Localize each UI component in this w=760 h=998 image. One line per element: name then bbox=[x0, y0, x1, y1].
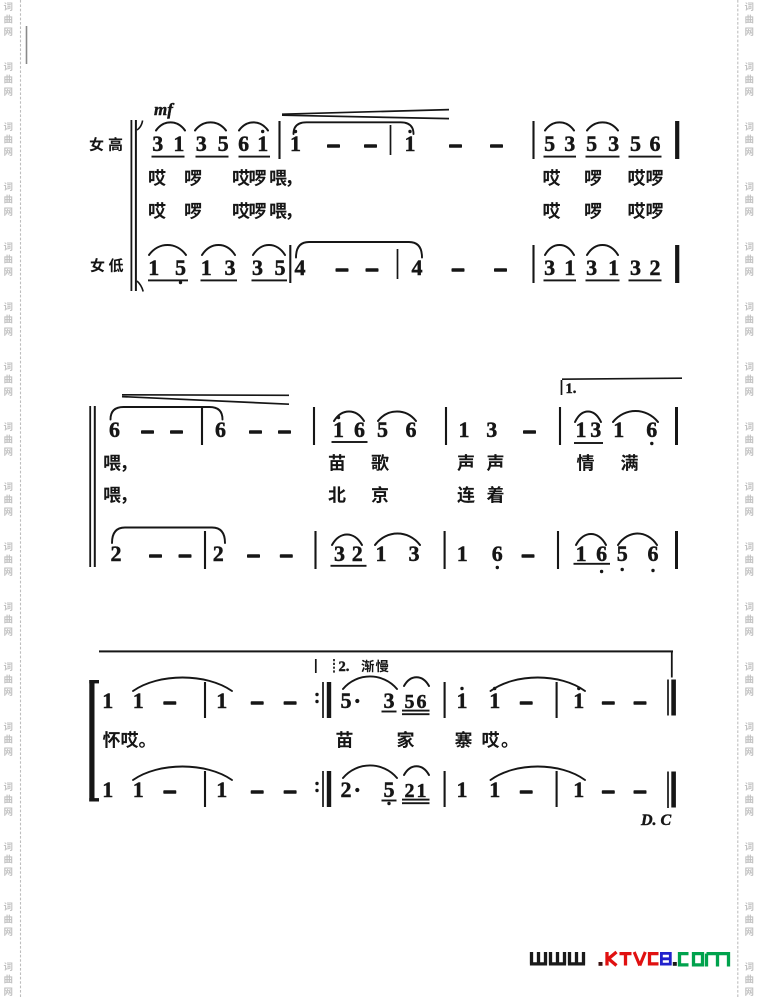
svg-text:1: 1 bbox=[564, 255, 575, 280]
svg-text:2: 2 bbox=[111, 541, 122, 566]
svg-text:5: 5 bbox=[175, 255, 186, 280]
svg-text:1: 1 bbox=[133, 777, 144, 802]
svg-text:3: 3 bbox=[196, 131, 207, 156]
svg-text:5: 5 bbox=[544, 131, 555, 156]
svg-text:4: 4 bbox=[295, 255, 306, 280]
svg-text:1: 1 bbox=[459, 417, 470, 442]
svg-text:1: 1 bbox=[257, 131, 268, 156]
svg-text:3: 3 bbox=[252, 255, 263, 280]
svg-text:3: 3 bbox=[486, 417, 497, 442]
svg-text:6: 6 bbox=[109, 417, 120, 442]
svg-text:3: 3 bbox=[225, 255, 236, 280]
svg-text:2: 2 bbox=[213, 541, 224, 566]
svg-text:2.: 2. bbox=[339, 659, 350, 675]
svg-text:1: 1 bbox=[148, 255, 159, 280]
svg-text:4: 4 bbox=[412, 255, 423, 280]
svg-text:1: 1 bbox=[201, 255, 212, 280]
svg-text:1: 1 bbox=[573, 777, 584, 802]
svg-text:5: 5 bbox=[275, 255, 286, 280]
svg-text:5: 5 bbox=[586, 131, 597, 156]
svg-text:1: 1 bbox=[173, 131, 184, 156]
svg-text:6: 6 bbox=[238, 131, 249, 156]
svg-text:6: 6 bbox=[215, 417, 226, 442]
svg-text:3: 3 bbox=[630, 255, 641, 280]
svg-text:5: 5 bbox=[630, 131, 641, 156]
svg-text:2: 2 bbox=[341, 777, 352, 802]
svg-text:1: 1 bbox=[457, 541, 468, 566]
svg-text:1: 1 bbox=[457, 777, 468, 802]
svg-text:1: 1 bbox=[133, 688, 144, 713]
svg-text:3: 3 bbox=[608, 131, 619, 156]
svg-text:6: 6 bbox=[650, 131, 661, 156]
svg-text:D. C: D. C bbox=[640, 812, 672, 829]
svg-text:1: 1 bbox=[573, 688, 584, 713]
svg-text:1: 1 bbox=[457, 688, 468, 713]
svg-text:1: 1 bbox=[102, 777, 113, 802]
svg-text:1: 1 bbox=[290, 131, 301, 156]
svg-text:1.: 1. bbox=[566, 381, 577, 397]
svg-text:3: 3 bbox=[544, 255, 555, 280]
svg-text:3: 3 bbox=[586, 255, 597, 280]
svg-text:1: 1 bbox=[216, 777, 227, 802]
svg-text:3: 3 bbox=[152, 131, 163, 156]
svg-text:3: 3 bbox=[409, 541, 420, 566]
svg-text:2: 2 bbox=[650, 255, 661, 280]
svg-text:mf: mf bbox=[154, 100, 175, 119]
svg-text:1: 1 bbox=[102, 688, 113, 713]
svg-text:1: 1 bbox=[376, 541, 387, 566]
svg-text:6: 6 bbox=[492, 541, 503, 566]
svg-text:3: 3 bbox=[564, 131, 575, 156]
svg-text:5: 5 bbox=[341, 688, 352, 713]
svg-text:3: 3 bbox=[384, 688, 395, 713]
svg-text:1: 1 bbox=[608, 255, 619, 280]
svg-text:5: 5 bbox=[218, 131, 229, 156]
svg-text:1: 1 bbox=[216, 688, 227, 713]
svg-text:5: 5 bbox=[384, 777, 395, 802]
svg-text:3: 3 bbox=[334, 541, 345, 566]
svg-text:1: 1 bbox=[576, 417, 587, 442]
